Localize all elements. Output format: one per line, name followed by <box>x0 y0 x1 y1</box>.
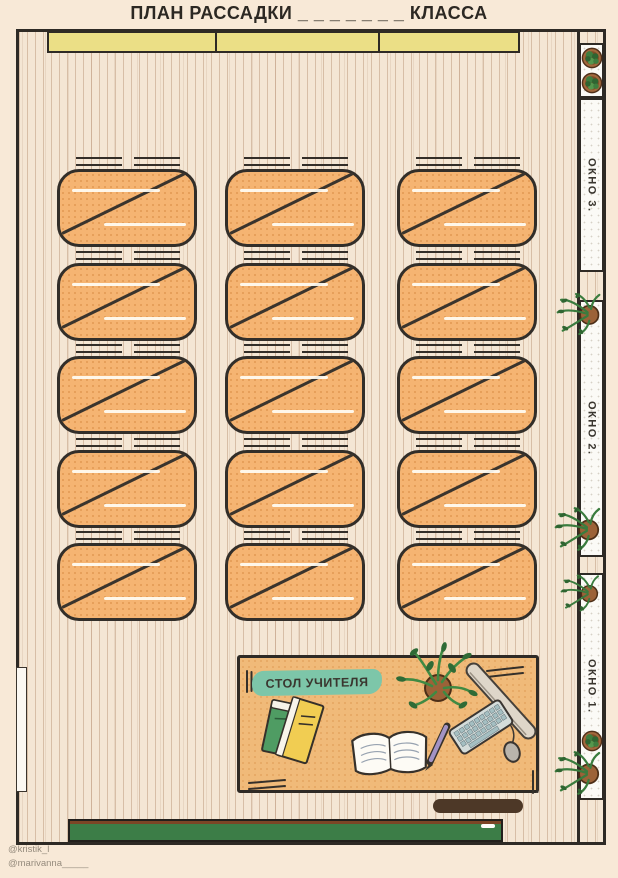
chair-mark <box>302 438 348 447</box>
chalk-piece <box>481 824 495 828</box>
credits: @kristik_l @marivanna_____ <box>8 843 88 871</box>
chair-mark <box>244 531 290 540</box>
student-desk <box>225 450 365 528</box>
chair-mark <box>76 344 122 353</box>
student-name-line <box>412 376 500 379</box>
open-notebook <box>352 731 428 775</box>
student-name-line <box>104 223 186 226</box>
chair-mark <box>474 438 520 447</box>
student-name-line <box>412 563 500 566</box>
student-name-line <box>104 597 186 600</box>
student-desk <box>57 263 197 341</box>
student-desk <box>225 263 365 341</box>
chair-mark <box>76 251 122 260</box>
chair-mark <box>302 157 348 166</box>
chair-mark <box>76 438 122 447</box>
chair-mark <box>134 438 180 447</box>
chair-mark <box>302 531 348 540</box>
student-name-line <box>72 189 160 192</box>
student-name-line <box>444 410 526 413</box>
student-name-line <box>104 317 186 320</box>
student-desk <box>397 356 537 434</box>
student-name-line <box>72 283 160 286</box>
chair-mark <box>244 438 290 447</box>
chair-mark <box>416 531 462 540</box>
teacher-desk-label: СТОЛ УЧИТЕЛЯ <box>252 669 382 696</box>
desk-plant <box>396 641 479 710</box>
student-name-line <box>444 223 526 226</box>
student-desk <box>397 263 537 341</box>
chair-mark <box>134 251 180 260</box>
chair-mark <box>474 157 520 166</box>
student-name-line <box>72 470 160 473</box>
chair-mark <box>474 251 520 260</box>
chair-mark <box>416 157 462 166</box>
student-name-line <box>412 470 500 473</box>
student-name-line <box>240 376 328 379</box>
student-name-line <box>104 504 186 507</box>
chair-mark <box>416 438 462 447</box>
student-name-line <box>272 504 354 507</box>
credit-handle: @kristik_l <box>8 843 88 857</box>
teacher-desk: СТОЛ УЧИТЕЛЯ <box>237 655 539 793</box>
student-name-line <box>104 410 186 413</box>
student-desk <box>225 169 365 247</box>
teacher-desk-items <box>240 638 542 798</box>
chair-mark <box>76 531 122 540</box>
student-name-line <box>240 563 328 566</box>
pencil <box>425 726 447 771</box>
credit-handle: @marivanna_____ <box>8 857 88 871</box>
chair-mark <box>76 157 122 166</box>
student-name-line <box>240 470 328 473</box>
chalkboard <box>68 819 503 842</box>
chair-mark <box>244 157 290 166</box>
student-desk <box>57 543 197 621</box>
chair-mark <box>416 344 462 353</box>
student-desk <box>397 169 537 247</box>
student-name-line <box>272 410 354 413</box>
chair-mark <box>134 344 180 353</box>
student-desk <box>57 169 197 247</box>
chair-mark <box>244 251 290 260</box>
student-name-line <box>72 376 160 379</box>
student-name-line <box>240 283 328 286</box>
chair-mark <box>474 344 520 353</box>
student-name-line <box>72 563 160 566</box>
seating-plan-illustration: ПЛАН РАССАДКИ _ _ _ _ _ _ _ КЛАССА ОКНО … <box>0 0 618 878</box>
chair-mark <box>134 531 180 540</box>
student-desk <box>397 450 537 528</box>
mouse <box>502 740 522 764</box>
student-name-line <box>444 597 526 600</box>
student-name-line <box>444 317 526 320</box>
student-desk <box>57 356 197 434</box>
chair-mark <box>302 251 348 260</box>
chair-mark <box>302 344 348 353</box>
student-name-line <box>444 504 526 507</box>
student-name-line <box>272 317 354 320</box>
student-desk <box>225 543 365 621</box>
chair-mark <box>134 157 180 166</box>
student-name-line <box>412 283 500 286</box>
student-name-line <box>272 597 354 600</box>
chair-mark <box>416 251 462 260</box>
books <box>262 697 324 764</box>
student-name-line <box>240 189 328 192</box>
student-name-line <box>272 223 354 226</box>
student-name-line <box>412 189 500 192</box>
student-desk <box>225 356 365 434</box>
student-desk <box>57 450 197 528</box>
chair-mark <box>244 344 290 353</box>
chair-mark <box>474 531 520 540</box>
student-desk <box>397 543 537 621</box>
chalk-tray <box>433 799 523 813</box>
